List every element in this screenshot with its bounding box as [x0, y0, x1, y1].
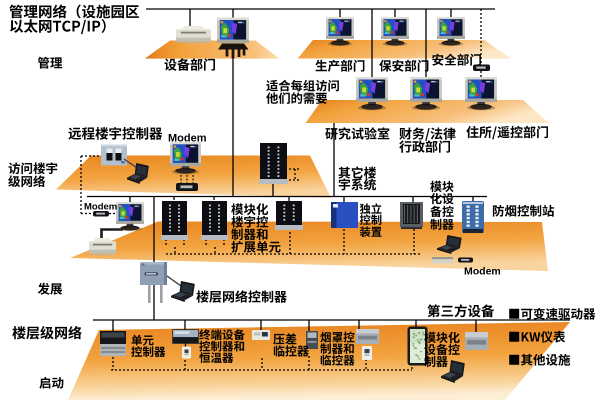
svg-text:Modem: Modem: [464, 266, 501, 278]
svg-text:Modem: Modem: [168, 133, 207, 145]
svg-text:Modem: Modem: [84, 202, 117, 213]
